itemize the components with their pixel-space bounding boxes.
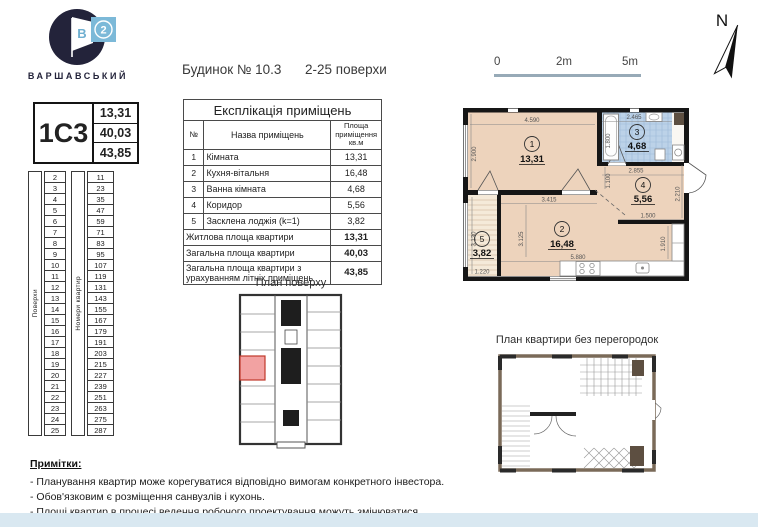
wardrobe-icon (672, 224, 684, 261)
stove-icon (576, 262, 600, 276)
explication-row: 5Засклена лоджія (k=1)3,82 (184, 213, 382, 229)
note-item: - Обов'язковим є розміщення санвузлів і … (30, 490, 530, 505)
scale-label-2m: 2m (556, 56, 572, 68)
apartment-plan: 4.590 2.465 2.900 1.800 2.855 1.100 2.21… (450, 99, 712, 297)
unit-total-area: 40,03 (94, 123, 137, 143)
explication-title: Експлікація приміщень (184, 100, 382, 121)
scale-label-5m: 5m (622, 56, 638, 68)
plan-sheet: В 2 ВАРШАВСЬКИЙ Будинок № 10.3 2-25 пове… (0, 0, 758, 527)
notes-section: Примітки: - Планування квартир може коре… (30, 458, 530, 520)
note-item: - Планування квартир може корегуватися в… (30, 475, 530, 490)
explication-table: Експлікація приміщень № Назва приміщень … (183, 99, 382, 285)
badge-number: 2 (100, 25, 106, 37)
highlighted-unit (240, 356, 265, 380)
np-entry-gap (650, 400, 655, 420)
apartments-table: Номери квартир 1123354759718395107119131… (71, 171, 114, 436)
washing-machine-icon (673, 145, 685, 160)
brand-name: ВАРШАВСЬКИЙ (17, 71, 139, 81)
dim-bath-width: 2.465 (626, 115, 642, 121)
floors-column-label: Поверхи (28, 171, 42, 436)
dim-room2-width: 5.880 (570, 255, 586, 261)
floors-range: 2-25 поверхи (305, 62, 387, 77)
dim-room1-height: 2.900 (472, 146, 478, 162)
unit-code: 1C3 (35, 104, 94, 162)
explication-summary-row: Загальна площа квартири40,03 (184, 245, 382, 261)
room-2-area: 16,48 (550, 239, 574, 250)
explication-row: 4Коридор5,56 (184, 197, 382, 213)
bath-cabinet-icon (674, 113, 684, 125)
floors-col: 2345678910111213141516171819202122232425 (44, 171, 66, 436)
explication-row: 2Кухня-вітальня16,48 (184, 165, 382, 181)
room-5-area: 3,82 (473, 248, 492, 259)
explication-row: 1Кімната13,31 (184, 149, 382, 165)
entry-door (689, 163, 706, 193)
north-label: N (716, 11, 728, 30)
scale-bar (494, 74, 641, 77)
col-header-name: Назва приміщень (204, 121, 331, 150)
dim-hall-width2: 1.500 (640, 214, 656, 220)
explication-row: 3Ванна кімната4,68 (184, 181, 382, 197)
dim-room2-height: 3.125 (519, 231, 525, 247)
col-header-num: № (184, 121, 204, 150)
apartments-column-label: Номери квартир (71, 171, 85, 436)
dim-hall-opening: 1.100 (606, 173, 612, 189)
room-3-number: 3 (635, 127, 640, 137)
explication-header-row: № Назва приміщень Площа приміщення кв.м (184, 121, 382, 150)
dim-bathtub: 1.800 (606, 133, 612, 149)
dim-hall-width: 2.855 (628, 169, 644, 175)
room-2-number: 2 (560, 224, 565, 234)
unit-values: 13,31 40,03 43,85 (94, 104, 137, 162)
brand-logo: В 2 (30, 5, 145, 69)
building-title: Будинок № 10.3 (182, 62, 281, 77)
toilet-icon (655, 149, 665, 160)
room-4-number: 4 (641, 180, 646, 190)
floor-cell: 25 (44, 424, 66, 436)
compass-needle-icon (714, 23, 746, 79)
notes-title: Примітки: (30, 458, 530, 470)
explication-body: 1Кімната13,312Кухня-вітальня16,483Ванна … (184, 149, 382, 284)
col-header-area: Площа приміщення кв.м (331, 121, 382, 150)
room-5-number: 5 (480, 234, 485, 244)
building-floor-plan (237, 292, 345, 452)
dim-kitchen-side: 1.910 (661, 236, 667, 252)
scale-label-0: 0 (494, 56, 500, 68)
room-1-area: 13,31 (520, 154, 544, 165)
room-4-area: 5,56 (634, 194, 653, 205)
floors-apartments-tables: Поверхи 23456789101112131415161718192021… (28, 171, 114, 436)
dim-room1-width: 4.590 (524, 118, 540, 124)
building-entrance (277, 442, 305, 448)
floor-plan-title: План поверху (231, 277, 351, 289)
unit-living-area: 13,31 (94, 104, 137, 123)
north-arrow: N (700, 6, 756, 80)
dim-loggia-width: 1.220 (474, 270, 490, 276)
no-partition-plan-title: План квартири без перегородок (467, 334, 687, 346)
explication-summary-row: Житлова площа квартири13,31 (184, 229, 382, 245)
dim-room2-width1: 3.415 (541, 198, 557, 204)
apartments-col: 1123354759718395107119131143155167179191… (87, 171, 114, 436)
floors-table: Поверхи 23456789101112131415161718192021… (28, 171, 66, 436)
room-1-number: 1 (530, 139, 535, 149)
bottom-strip (0, 513, 758, 527)
unit-card: 1C3 13,31 40,03 43,85 (33, 102, 139, 164)
flag-letter: В (77, 26, 86, 41)
np-stub-wall (530, 412, 576, 416)
room-3-area: 4,68 (628, 141, 647, 152)
dim-entry-side: 2.210 (676, 186, 682, 202)
apartment-cell: 287 (87, 424, 114, 436)
unit-total-area-summer: 43,85 (94, 142, 137, 162)
